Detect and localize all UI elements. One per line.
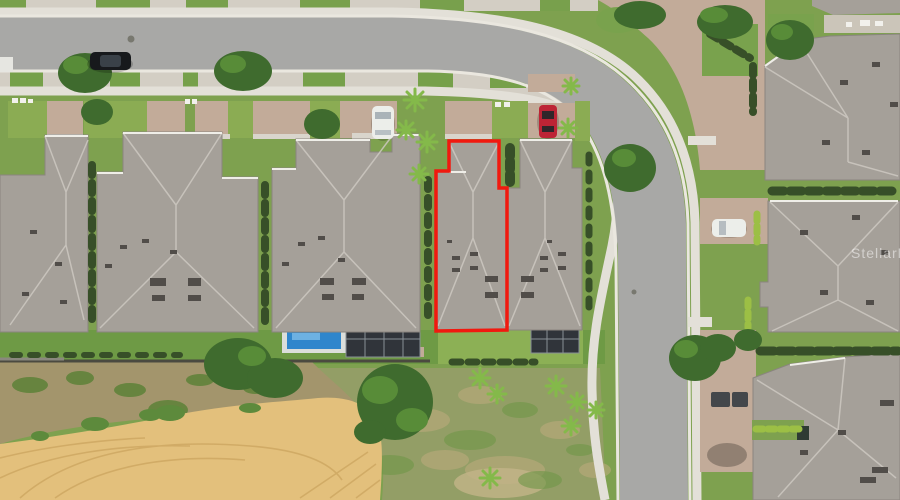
tree bbox=[81, 99, 113, 125]
tree-highlight bbox=[362, 376, 398, 404]
grass-tuft bbox=[81, 417, 109, 431]
grass-tuft bbox=[155, 405, 185, 421]
tree-highlight bbox=[220, 55, 246, 73]
lawn bbox=[228, 101, 253, 138]
driveway bbox=[47, 101, 83, 138]
palm-tree bbox=[562, 417, 580, 435]
palm-tree bbox=[417, 132, 437, 152]
front-walkway bbox=[688, 136, 716, 145]
aerial-photo: StellarMLS bbox=[0, 0, 900, 500]
pool-glint bbox=[292, 333, 320, 340]
aerial-neighborhood-scene: StellarMLS bbox=[0, 0, 900, 500]
green-patch bbox=[444, 430, 496, 450]
tree bbox=[214, 51, 272, 91]
scrub-bush bbox=[66, 371, 94, 385]
palm-tree bbox=[397, 121, 415, 139]
median-grass bbox=[303, 71, 345, 88]
scrub-bush bbox=[12, 377, 48, 393]
median-grass bbox=[418, 71, 453, 88]
dry-patch bbox=[421, 450, 469, 470]
tree bbox=[700, 334, 736, 362]
palm-tree bbox=[404, 89, 426, 111]
palm-tree bbox=[546, 376, 566, 396]
scrub-bush bbox=[114, 383, 146, 397]
garage-face bbox=[445, 134, 492, 139]
car-red bbox=[539, 105, 557, 138]
manhole-cover bbox=[128, 36, 135, 43]
driveway bbox=[253, 101, 310, 138]
tree-highlight bbox=[612, 149, 636, 167]
front-walkway bbox=[688, 317, 712, 327]
red-car-rear-glass bbox=[542, 126, 554, 132]
red-car-windshield bbox=[542, 111, 554, 119]
palm-tree bbox=[480, 468, 500, 488]
palm-tree bbox=[488, 385, 506, 403]
palm-shadow bbox=[707, 443, 747, 467]
trash-bins bbox=[711, 392, 748, 407]
median-grass bbox=[183, 71, 198, 88]
trash-bin bbox=[732, 392, 748, 407]
tree bbox=[304, 109, 340, 139]
tree-highlight bbox=[674, 340, 698, 358]
green-patch bbox=[518, 471, 562, 489]
stellar-mls-watermark: StellarMLS bbox=[851, 245, 900, 261]
car-white bbox=[712, 219, 746, 237]
tree-highlight bbox=[700, 7, 728, 23]
garage-face bbox=[253, 134, 310, 139]
white-object-roadside bbox=[0, 57, 13, 72]
suv-rear-glass bbox=[375, 130, 391, 135]
grass-tuft bbox=[31, 431, 49, 441]
tree bbox=[734, 329, 762, 351]
lawn bbox=[575, 101, 590, 141]
grass-tuft bbox=[239, 403, 261, 413]
palm-tree bbox=[563, 78, 579, 94]
median-grass bbox=[10, 71, 43, 88]
house-roof bbox=[760, 201, 900, 332]
median-grass bbox=[110, 71, 140, 88]
tree-highlight bbox=[63, 56, 89, 74]
palm-tree bbox=[559, 119, 577, 137]
tree bbox=[614, 1, 666, 29]
tree bbox=[766, 20, 814, 60]
palm-tree bbox=[470, 368, 490, 388]
trash-bin bbox=[711, 392, 730, 407]
manhole-cover bbox=[632, 290, 637, 295]
tree bbox=[354, 420, 386, 444]
suv-windshield bbox=[375, 112, 391, 119]
palm-tree bbox=[568, 393, 586, 411]
tree-highlight bbox=[238, 346, 266, 366]
driveway bbox=[445, 101, 492, 138]
white-car-windshield bbox=[719, 221, 726, 235]
green-patch bbox=[566, 444, 594, 456]
car-dark-glass bbox=[100, 55, 121, 67]
green-patch bbox=[502, 402, 538, 418]
palm-tree bbox=[588, 402, 604, 418]
lawn bbox=[8, 101, 47, 138]
palm-tree bbox=[410, 165, 428, 183]
tree-highlight bbox=[771, 24, 793, 40]
tree-highlight bbox=[396, 408, 428, 432]
grass-patch bbox=[540, 0, 570, 11]
